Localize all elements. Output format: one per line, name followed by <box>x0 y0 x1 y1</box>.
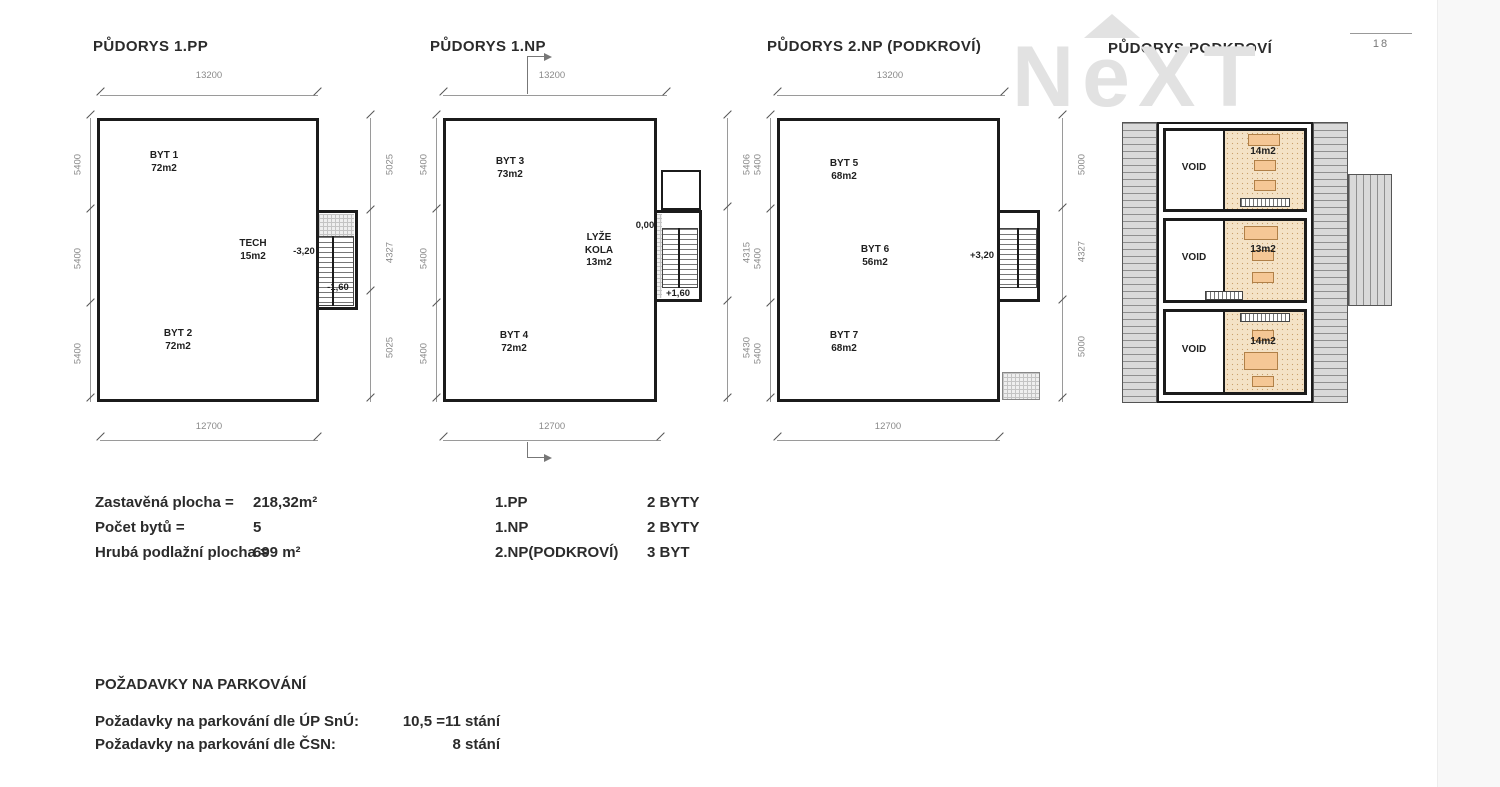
plan2-dim-left-2: 5400 <box>419 239 430 279</box>
apartment-name: BYT 4 <box>482 330 546 343</box>
plan1-apartment2-label: BYT 2 72m2 <box>146 328 210 353</box>
dimension-line <box>777 440 1000 441</box>
apartment-area: 72m2 <box>482 343 546 356</box>
drawing-sheet: PŮDORYS 1.PP 13200 5400 5400 5400 5025 4… <box>0 0 1500 787</box>
desk <box>1252 272 1274 283</box>
plan3-apartment6-label: BYT 6 56m2 <box>843 244 907 269</box>
plan4-area1-label: 14m2 <box>1233 146 1293 159</box>
plan3-dim-left-1: 5400 <box>753 145 764 185</box>
floors-label-2: 1.NP <box>495 519 528 536</box>
stair-rail <box>1017 228 1019 288</box>
dimension-line <box>100 440 318 441</box>
apartment-name: BYT 6 <box>843 244 907 257</box>
section-line <box>527 56 528 94</box>
store-line3: 13m2 <box>573 257 625 270</box>
plan3-terrace-hatch <box>1002 372 1040 400</box>
plan3-dim-right-2: 4327 <box>1077 232 1088 272</box>
plan2-dim-bottom: 12700 <box>492 421 612 432</box>
plan3-dim-bottom: 12700 <box>828 421 948 432</box>
parking-label-1: Požadavky na parkování dle ÚP SnÚ: <box>95 713 359 730</box>
plan1-dim-left-1: 5400 <box>73 145 84 185</box>
watermark-roof-icon <box>1084 14 1140 38</box>
parking-heading: POŽADAVKY NA PARKOVÁNÍ <box>95 676 306 693</box>
dimension-line <box>100 95 318 96</box>
plan4-stairs2 <box>1205 291 1243 300</box>
plan1-level-main: -3,20 <box>286 246 322 257</box>
parking-value-1: 10,5 =11 stání <box>380 713 500 730</box>
plan2-apartment4-label: BYT 4 72m2 <box>482 330 546 355</box>
plan2-dim-right-3: 5430 <box>742 328 753 368</box>
watermark: N e X T <box>1012 32 1264 122</box>
apartment-area: 72m2 <box>132 163 196 176</box>
dimension-line <box>436 118 437 402</box>
dimension-line <box>90 118 91 402</box>
plan2-dim-right-2: 4315 <box>742 233 753 273</box>
plan4-void2-label: VOID <box>1168 252 1220 265</box>
tech-area: 15m2 <box>226 251 280 264</box>
wall <box>1223 128 1225 212</box>
watermark-letter: N <box>1012 32 1082 122</box>
plan3-level-main: +3,20 <box>962 250 1002 261</box>
watermark-letter: T <box>1203 32 1264 122</box>
stair-rail <box>678 228 680 288</box>
plan1-dim-right-2: 4327 <box>385 233 396 273</box>
plan4-roof-left <box>1122 122 1157 403</box>
plan4-stairs3 <box>1240 313 1290 322</box>
plan2-level-main: 0,00 <box>628 220 662 231</box>
plan4-void3-label: VOID <box>1168 344 1220 357</box>
parking-value-2: 8 stání <box>380 736 500 753</box>
plan4-void1-label: VOID <box>1168 162 1220 175</box>
dimension-line <box>777 95 1005 96</box>
plan3-title: PŮDORYS 2.NP (PODKROVÍ) <box>767 38 981 55</box>
plan3-apartment5-label: BYT 5 68m2 <box>812 158 876 183</box>
stair-rail <box>332 236 334 306</box>
wall <box>1223 309 1225 395</box>
summary-label-2: Počet bytů = <box>95 519 185 536</box>
floors-value-3: 3 BYT <box>647 544 690 561</box>
store-line2: KOLA <box>573 245 625 258</box>
plan2-apartment3-label: BYT 3 73m2 <box>478 156 542 181</box>
plan2-dim-left-1: 5400 <box>419 145 430 185</box>
plan2-entry-porch <box>661 170 701 210</box>
section-arrow <box>544 454 552 462</box>
plan2-dim-right-1: 5406 <box>742 145 753 185</box>
floors-value-1: 2 BYTY <box>647 494 700 511</box>
desk <box>1252 376 1274 387</box>
plan2-dim-left-3: 5400 <box>419 334 430 374</box>
desk <box>1254 160 1276 171</box>
dimension-line <box>443 440 661 441</box>
desk <box>1254 180 1276 191</box>
watermark-letter: e <box>1082 32 1138 122</box>
plan4-roof-extension <box>1348 174 1392 306</box>
summary-value-1: 218,32m² <box>253 494 317 511</box>
apartment-name: BYT 2 <box>146 328 210 341</box>
plan3-dim-top: 13200 <box>830 70 950 81</box>
dimension-line <box>443 95 667 96</box>
page-number-rule <box>1350 33 1412 34</box>
plan4-area3-label: 14m2 <box>1233 336 1293 349</box>
floors-label-3: 2.NP(PODKROVÍ) <box>495 544 618 561</box>
apartment-area: 68m2 <box>812 343 876 356</box>
summary-value-3: 699 m² <box>253 544 301 561</box>
apartment-area: 56m2 <box>843 257 907 270</box>
summary-label-3: Hrubá podlažní plocha = <box>95 544 269 561</box>
apartment-name: BYT 5 <box>812 158 876 171</box>
plan3-dim-right-1: 5000 <box>1077 145 1088 185</box>
plan2-dim-top: 13200 <box>492 70 612 81</box>
apartment-name: BYT 1 <box>132 150 196 163</box>
plan1-dim-right-3: 5025 <box>385 328 396 368</box>
plan1-dim-right-1: 5025 <box>385 145 396 185</box>
tech-name: TECH <box>226 238 280 251</box>
apartment-name: BYT 7 <box>812 330 876 343</box>
plan3-apartment7-label: BYT 7 68m2 <box>812 330 876 355</box>
plan3-dim-left-3: 5400 <box>753 334 764 374</box>
plan3-dim-left-2: 5400 <box>753 239 764 279</box>
plan1-title: PŮDORYS 1.PP <box>93 38 208 55</box>
section-line <box>527 442 528 458</box>
page-number: 18 <box>1364 38 1398 50</box>
summary-label-1: Zastavěná plocha = <box>95 494 234 511</box>
dimension-line <box>770 118 771 402</box>
floors-label-1: 1.PP <box>495 494 528 511</box>
watermark-letter: X <box>1138 32 1203 122</box>
dimension-line <box>370 118 371 402</box>
plan4-stairs1 <box>1240 198 1290 207</box>
dimension-line <box>727 118 728 402</box>
desk <box>1248 134 1280 146</box>
plan4-roof-right <box>1313 122 1348 403</box>
plan2-stairs <box>662 228 698 288</box>
store-line1: LYŽE <box>573 232 625 245</box>
apartment-area: 72m2 <box>146 341 210 354</box>
section-line <box>527 457 545 458</box>
parking-label-2: Požadavky na parkování dle ČSN: <box>95 736 336 753</box>
floors-value-2: 2 BYTY <box>647 519 700 536</box>
plan1-dim-bottom: 12700 <box>149 421 269 432</box>
plan1-building-outline <box>97 118 319 402</box>
plan1-tech-label: TECH 15m2 <box>226 238 280 263</box>
dimension-line <box>1062 118 1063 402</box>
desk <box>1244 352 1278 370</box>
page-right-margin <box>1437 0 1500 787</box>
section-line <box>527 56 545 57</box>
plan1-dim-left-2: 5400 <box>73 239 84 279</box>
apartment-name: BYT 3 <box>478 156 542 169</box>
apartment-area: 68m2 <box>812 171 876 184</box>
plan1-apartment1-label: BYT 1 72m2 <box>132 150 196 175</box>
apartment-area: 73m2 <box>478 169 542 182</box>
plan2-title: PŮDORYS 1.NP <box>430 38 546 55</box>
plan1-level-landing: -1,60 <box>320 282 356 293</box>
plan3-dim-right-3: 5000 <box>1077 327 1088 367</box>
plan2-ski-store-label: LYŽE KOLA 13m2 <box>573 232 625 270</box>
plan1-dim-left-3: 5400 <box>73 334 84 374</box>
plan2-level-landing: +1,60 <box>658 288 698 299</box>
plan4-area2-label: 13m2 <box>1233 244 1293 257</box>
summary-value-2: 5 <box>253 519 261 536</box>
desk <box>1244 226 1278 240</box>
plan1-dim-top: 13200 <box>149 70 269 81</box>
